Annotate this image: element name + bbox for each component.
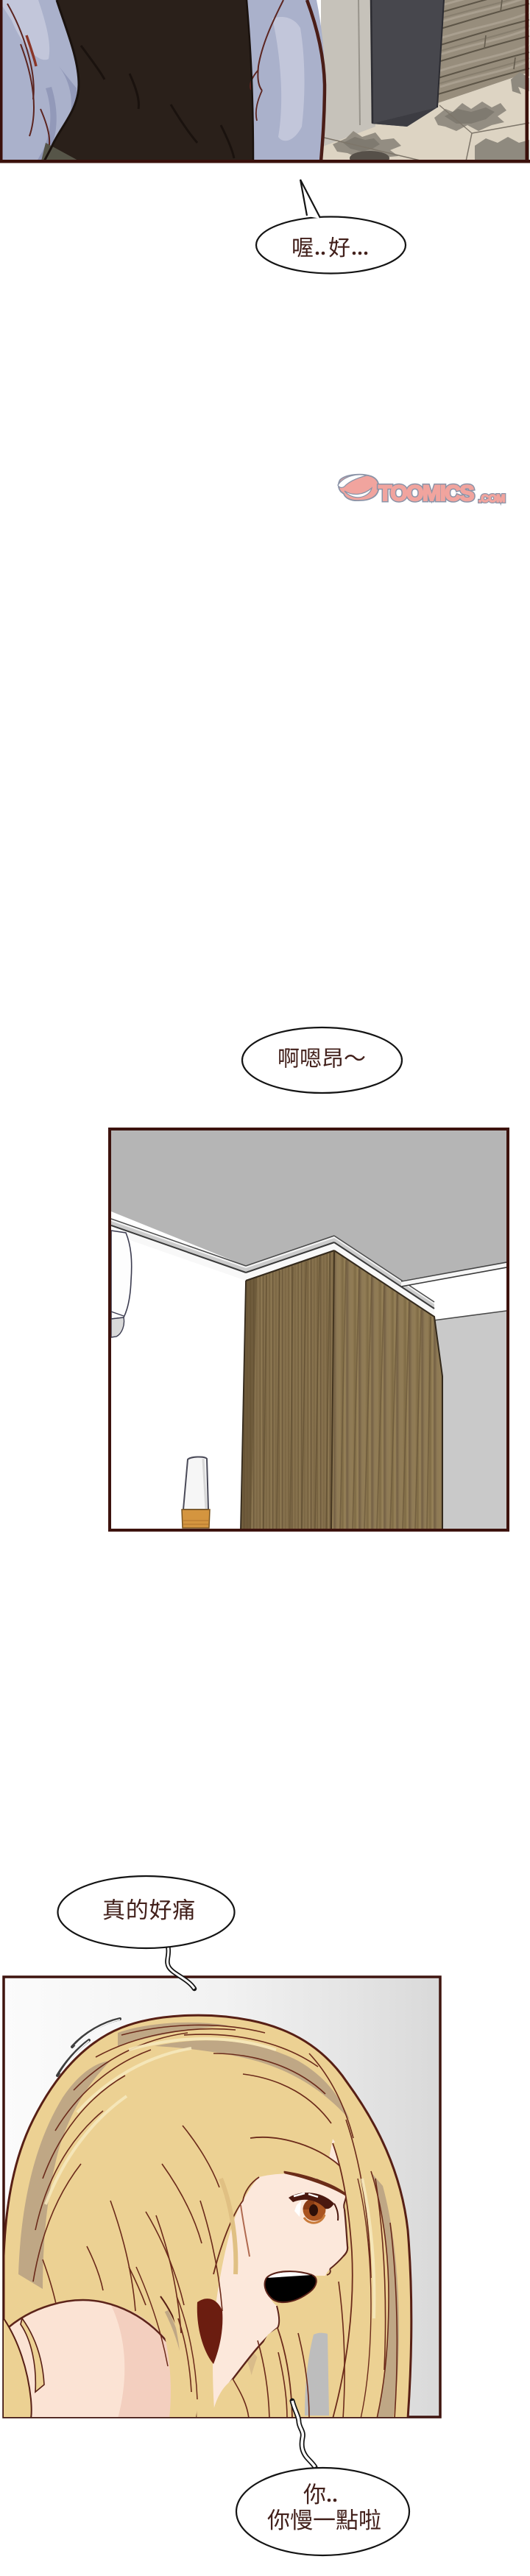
svg-text:TOOMICS: TOOMICS — [378, 481, 473, 506]
svg-text:.COM: .COM — [478, 493, 505, 505]
